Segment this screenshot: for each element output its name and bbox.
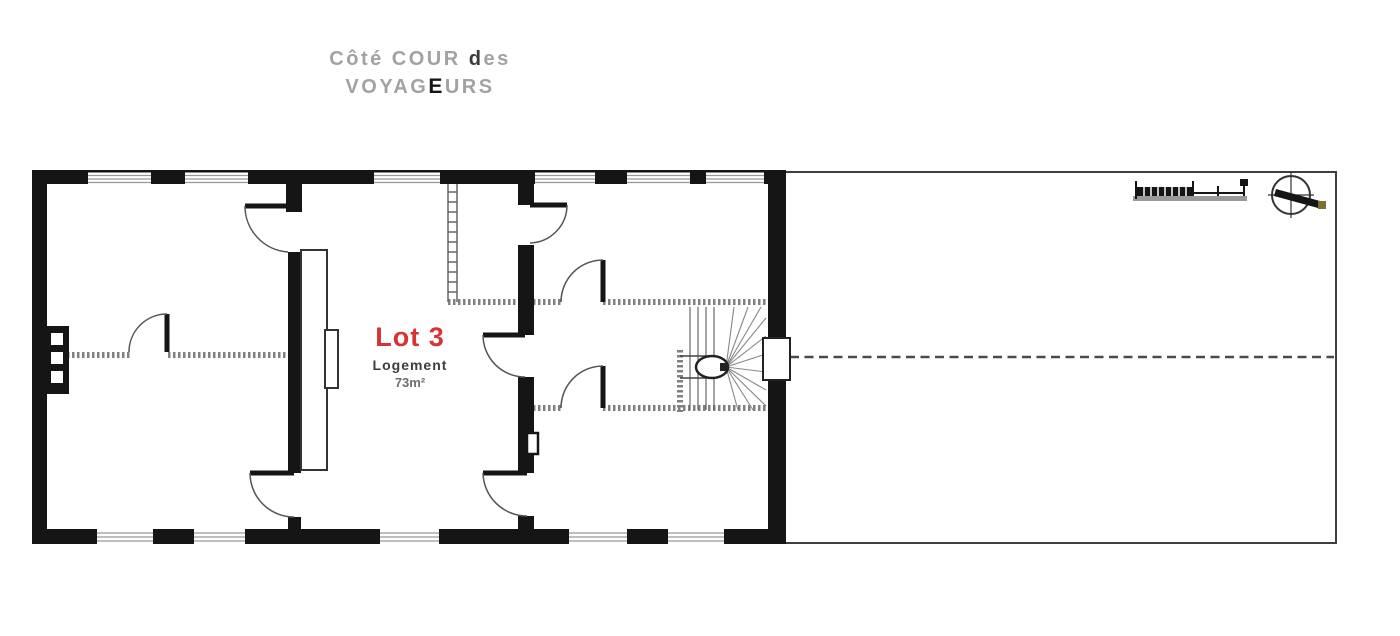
floor-plan-page: Côté COUR des VOYAGEURS Lot 3 Logement 7… [0,0,1400,636]
window [706,173,764,185]
window [97,529,153,544]
top-wall-windows [88,173,764,185]
window [374,173,440,185]
interior-light-partitions [47,302,768,412]
exterior-door-frame [763,338,790,380]
building-exterior-walls [32,170,786,544]
wall-niche [527,433,538,454]
window [668,529,724,544]
window [627,173,690,185]
window [569,529,627,544]
window [185,173,248,185]
compass-north-arrow-icon [1268,172,1326,218]
window [194,529,245,544]
chimney-block [301,250,338,470]
floor-plan-drawing [0,0,1400,636]
window [535,173,595,185]
window [88,173,151,185]
staircase [680,307,766,410]
radiator-symbol [47,326,69,394]
hatched-partition-wall [448,184,457,302]
window [380,529,439,544]
scale-bar [1133,179,1248,201]
